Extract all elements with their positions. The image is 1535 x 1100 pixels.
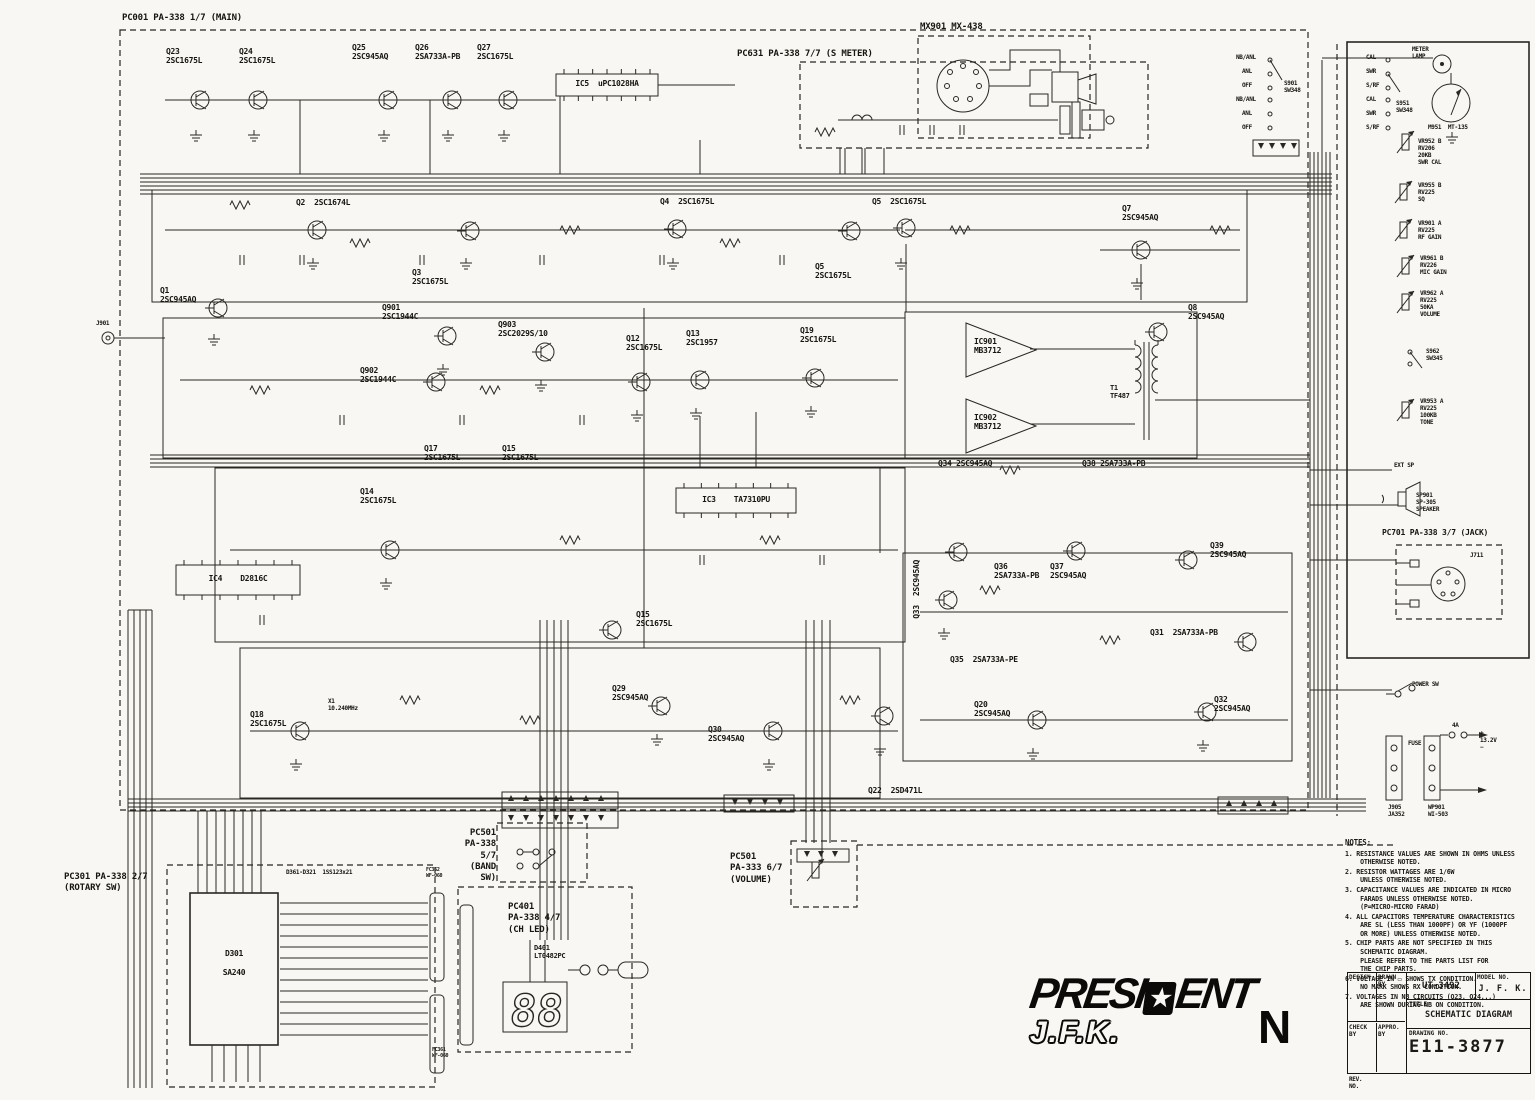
comp-Q902: Q902 2SC1944C	[360, 366, 396, 385]
comp-FC362: FC362 WF-060	[426, 868, 442, 880]
title-block-right: UT-3492 MODEL NO. J. F. K. TITLE SCHEMAT…	[1407, 973, 1530, 1073]
comp-IC3: IC3 TA7310PU	[676, 495, 796, 504]
title-block-left: DESIGN DRAWN BY CHECK BY APPRO. BY	[1348, 973, 1407, 1073]
board-label-main: PC001 PA-338 1/7 (MAIN)	[122, 13, 242, 24]
comp-Q17: Q17 2SC1675L	[424, 444, 460, 463]
comp-FC361: FC361 WF-060	[432, 1048, 448, 1060]
board-label-smeter: PC631 PA-338 7/7 (S METER)	[737, 49, 873, 60]
comp-Q27: Q27 2SC1675L	[477, 43, 513, 62]
comp-Q903: Q903 2SC2029S/10	[498, 320, 548, 339]
comp-Q4: Q4 2SC1675L	[660, 197, 714, 206]
comp-IC902: IC902 MB3712	[974, 413, 1001, 432]
comp-Q31: Q31 2SA733A-PB	[1150, 628, 1218, 637]
comp-PWR: POWER SW	[1412, 681, 1439, 688]
comp-VR962: VR962 A RV225 50KA VOLUME	[1420, 290, 1443, 318]
comp-IC901: IC901 MB3712	[974, 337, 1001, 356]
comp-VR955: VR955 B RV225 SQ	[1418, 182, 1441, 203]
comp-Q30: Q30 2SC945AQ	[708, 725, 744, 744]
comp-Q1: Q1 2SC945AQ	[160, 286, 196, 305]
comp-Q2: Q2 2SC1674L	[296, 198, 350, 207]
note-item: 4. ALL CAPACITORS TEMPERATURE CHARACTERI…	[1345, 913, 1533, 939]
comp-Q13: Q13 2SC1957	[686, 329, 718, 348]
comp-S951: S951 SW348	[1396, 100, 1413, 114]
comp-Q7: Q7 2SC945AQ	[1122, 204, 1158, 223]
comp-S951p1: CAL	[1366, 54, 1376, 61]
comp-Q34: Q34 2SC945AQ	[938, 459, 992, 468]
comp-S901p6: OFF	[1242, 124, 1252, 131]
comp-SP901: SP901 SP-305 SPEAKER	[1416, 492, 1439, 513]
note-item: 2. RESISTOR WATTAGES ARE 1/6W UNLESS OTH…	[1345, 868, 1533, 885]
drawing-label: DRAWING NO.	[1409, 1030, 1528, 1037]
comp-Q23: Q23 2SC1675L	[166, 47, 202, 66]
comp-Q25: Q25 2SC945AQ	[352, 43, 388, 62]
comp-X1: X1 10.240MHz	[328, 698, 358, 712]
comp-Q5m: Q5 2SC1675L	[815, 262, 851, 281]
comp-V132: + 13.2V −	[1480, 730, 1497, 751]
drawn-cell: DRAWN BY	[1376, 973, 1405, 1022]
board-label-chled: PC401 PA-338 4/7 (CH LED)	[508, 902, 560, 936]
comp-S901p5: ANL	[1242, 110, 1252, 117]
comp-VR952: VR952 B RV206 20KB SWR CAL	[1418, 138, 1441, 166]
comp-Q24: Q24 2SC1675L	[239, 47, 275, 66]
comp-Q38: Q38 2SA733A-PB	[1082, 459, 1145, 468]
appro-cell: APPRO. BY	[1376, 1023, 1405, 1072]
comp-D401: D401 LT0482PC	[534, 944, 565, 961]
model-label: MODEL NO.	[1477, 974, 1529, 981]
comp-Q26: Q26 2SA733A-PB	[415, 43, 460, 62]
comp-T1: T1 TF487	[1110, 384, 1130, 401]
rev-label: REV. NO.	[1349, 1076, 1362, 1090]
design-cell: DESIGN	[1348, 973, 1376, 1022]
comp-D301: D301 SA240	[190, 949, 278, 977]
comp-Q12: Q12 2SC1675L	[626, 334, 662, 353]
comp-S951p5: SWR	[1366, 110, 1376, 117]
title-cell: TITLE SCHEMATIC DIAGRAM	[1407, 1000, 1530, 1029]
comp-Q20: Q20 2SC945AQ	[974, 700, 1010, 719]
model-value: J. F. K.	[1477, 984, 1529, 994]
star-icon: ★	[1142, 982, 1177, 1015]
comp-D361: D361-D321 1SS123x21	[286, 869, 352, 876]
board-jack-outline	[1396, 545, 1502, 619]
comp-S901p3: OFF	[1242, 82, 1252, 89]
board-label-jack: PC701 PA-338 3/7 (JACK)	[1382, 528, 1488, 538]
model-cell: MODEL NO. J. F. K.	[1476, 973, 1530, 999]
board-label-mic: MX901 MX-438	[920, 22, 983, 33]
comp-J901: J901	[96, 320, 109, 327]
schematic-page: 88 PC001 PA-338 1/7 (MAIN) PC631 PA-338 …	[0, 0, 1535, 1100]
comp-S951p2: SWR	[1366, 68, 1376, 75]
comp-Q36: Q36 2SA733A-PB	[994, 562, 1039, 581]
comp-J711: J711	[1470, 552, 1483, 559]
board-mic-outline	[918, 36, 1090, 138]
comp-Q15b: Q15 2SC1675L	[636, 610, 672, 629]
comp-Q35: Q35 2SA733A-PE	[950, 655, 1018, 664]
comp-Q5: Q5 2SC1675L	[872, 197, 926, 206]
comp-Q29: Q29 2SC945AQ	[612, 684, 648, 703]
comp-S951p4: CAL	[1366, 96, 1376, 103]
title-block: DESIGN DRAWN BY CHECK BY APPRO. BY UT-34…	[1347, 972, 1531, 1074]
notes-heading: NOTES:	[1345, 838, 1533, 848]
comp-IC5: IC5 uPC1028HA	[556, 79, 658, 88]
board-main-outline	[120, 30, 1308, 810]
comp-Q37: Q37 2SC945AQ	[1050, 562, 1086, 581]
board-volume-outline	[791, 841, 857, 907]
drawing-cell: DRAWING NO. E11-3877	[1407, 1029, 1530, 1073]
comp-Q39: Q39 2SC945AQ	[1210, 541, 1246, 560]
comp-S901p4: NB/ANL	[1236, 96, 1256, 103]
drawing-number: E11-3877	[1409, 1037, 1528, 1057]
comp-S951p3: S/RF	[1366, 82, 1379, 89]
comp-Q22: Q22 2SD471L	[868, 786, 922, 795]
board-label-rotary: PC301 PA-338 2/7 (ROTARY SW)	[64, 872, 148, 895]
comp-EXTSP: EXT SP	[1394, 462, 1414, 469]
comp-VR901: VR901 A RV225 RF GAIN	[1418, 220, 1441, 241]
comp-Q901: Q901 2SC1944C	[382, 303, 418, 322]
comp-S901p2: ANL	[1242, 68, 1252, 75]
note-item: 1. RESISTANCE VALUES ARE SHOWN IN OHMS U…	[1345, 850, 1533, 867]
board-bandsw-outline	[497, 823, 587, 882]
comp-Q14: Q14 2SC1675L	[360, 487, 396, 506]
check-cell: CHECK BY	[1348, 1023, 1376, 1072]
comp-Q33: Q33 2SC945AQ	[912, 560, 921, 619]
comp-MLAMP: METER LAMP	[1412, 46, 1429, 60]
comp-Q3: Q3 2SC1675L	[412, 268, 448, 287]
board-label-volume: PC501 PA-333 6/7 (VOLUME)	[730, 852, 782, 886]
note-item: 5. CHIP PARTS ARE NOT SPECIFIED IN THIS …	[1345, 939, 1533, 973]
comp-Q19: Q19 2SC1675L	[800, 326, 836, 345]
comp-F4A: 4A	[1452, 722, 1459, 729]
comp-IC4: IC4 D2816C	[176, 574, 300, 583]
comp-J905: J905 JA352	[1388, 804, 1405, 818]
comp-FUSE: FUSE	[1408, 740, 1421, 747]
schematic-linework: 88	[0, 0, 1535, 1100]
comp-S962: S962 SW345	[1426, 348, 1443, 362]
doc-number: UT-3492	[1407, 973, 1476, 999]
board-label-bandsw: PC501 PA-338 5/7 (BAND SW)	[456, 828, 496, 884]
comp-VR961: VR961 B RV226 MIC GAIN	[1420, 255, 1447, 276]
comp-Q15: Q15 2SC1675L	[502, 444, 538, 463]
revision-letter: N	[1258, 1000, 1291, 1054]
title-value: SCHEMATIC DIAGRAM	[1409, 1010, 1528, 1020]
comp-S901p1: NB/ANL	[1236, 54, 1256, 61]
note-item: 3. CAPACITANCE VALUES ARE INDICATED IN M…	[1345, 886, 1533, 912]
comp-Q32: Q32 2SC945AQ	[1214, 695, 1250, 714]
comp-S951p6: S/RF	[1366, 124, 1379, 131]
comp-S901: S901 SW348	[1284, 80, 1301, 94]
title-label: TITLE	[1409, 1001, 1528, 1008]
comp-Q18: Q18 2SC1675L	[250, 710, 286, 729]
comp-M951: M951 MT-135	[1428, 124, 1468, 131]
comp-Q8: Q8 2SC945AQ	[1188, 303, 1224, 322]
comp-WP901: WP901 WI-503	[1428, 804, 1448, 818]
comp-VR953: VR953 A RV225 100KB TONE	[1420, 398, 1443, 426]
channel-display-digits: 88	[507, 986, 565, 1037]
